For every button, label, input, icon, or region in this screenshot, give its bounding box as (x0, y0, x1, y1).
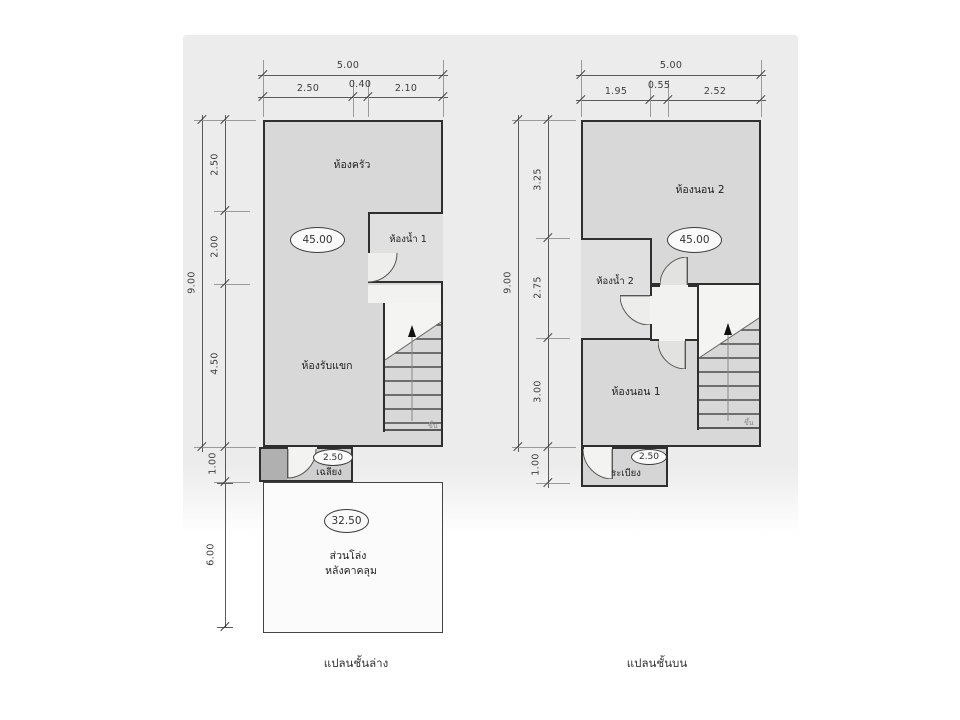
u-room-bathroom2-label: ห้องน้ำ 2 (585, 274, 645, 289)
g-dim-height-total: 9.00 (187, 263, 198, 303)
u-area-badge: 45.00 (667, 227, 722, 253)
g-dim-open-height: 6.00 (206, 535, 217, 575)
u-balcony-badge-value: 2.50 (639, 452, 659, 462)
dimension-line (202, 115, 203, 452)
g-caption: แปลนชั้นล่าง (306, 655, 406, 673)
dimension-line (576, 100, 766, 101)
dimension-line (548, 115, 549, 488)
u-dim-h1: 3.25 (533, 160, 544, 200)
extension-line (581, 60, 582, 117)
g-open-badge: 32.50 (324, 509, 369, 533)
g-open-area-label2: หลังคาคลุม (311, 562, 391, 579)
dimension-line (225, 115, 226, 487)
g-bathroom1-door (368, 253, 398, 283)
u-dim-height-total: 9.00 (503, 263, 514, 303)
u-area-badge-value: 45.00 (679, 234, 709, 246)
g-dim-width-total: 5.00 (328, 60, 368, 71)
dimension-line (518, 115, 519, 452)
u-dim-h2: 2.75 (533, 268, 544, 308)
u-bedroom1-door (658, 341, 686, 369)
u-bedroom2-door (660, 257, 688, 285)
g-room-porch-label: เฉลียง (299, 465, 359, 480)
u-dim-h3: 3.00 (533, 372, 544, 412)
dimension-lines-layer (0, 0, 960, 720)
u-balcony-badge: 2.50 (631, 449, 667, 465)
dimension-line (225, 483, 226, 627)
extension-line (214, 211, 250, 212)
u-dim-h4: 1.00 (531, 445, 542, 485)
g-open-badge-value: 32.50 (331, 515, 361, 527)
dimension-end-cap (217, 483, 233, 484)
u-caption: แปลนชั้นบน (607, 655, 707, 673)
g-dim-h4: 1.00 (208, 444, 219, 484)
extension-line (263, 60, 264, 117)
g-dim-h2: 2.00 (210, 227, 221, 267)
extension-line (536, 238, 570, 239)
g-dim-w2: 0.40 (344, 79, 376, 90)
dimension-line (258, 75, 448, 76)
g-porch-badge-value: 2.50 (323, 453, 343, 463)
g-stair-passage (368, 285, 441, 303)
g-room-living-label: ห้องรับแขก (287, 357, 367, 374)
extension-line (761, 60, 762, 117)
u-dim-w1: 1.95 (596, 86, 636, 97)
g-porch-badge: 2.50 (313, 449, 353, 466)
u-dim-w2: 0.55 (643, 80, 675, 91)
g-dim-h3: 4.50 (210, 344, 221, 384)
u-room-balcony-label: ระเบียง (596, 466, 656, 481)
u-wall-stub (650, 283, 660, 287)
g-porch-slab (261, 449, 287, 480)
u-room-bedroom2-label: ห้องนอน 2 (660, 181, 740, 198)
extension-line (443, 60, 444, 117)
g-dim-h1: 2.50 (210, 145, 221, 185)
u-dim-w3: 2.52 (695, 86, 735, 97)
u-room-bedroom1-label: ห้องนอน 1 (596, 383, 676, 400)
floor-plan-sheet: 5.00 2.50 0.40 2.10 9.00 2.50 2.00 4.50 … (0, 0, 960, 720)
u-hall (652, 287, 697, 339)
g-staircase: ขึ้น (385, 303, 441, 432)
extension-line (214, 284, 250, 285)
g-area-badge-value: 45.00 (302, 234, 332, 246)
u-dim-width-total: 5.00 (651, 60, 691, 71)
dimension-line (576, 75, 766, 76)
extension-line (536, 338, 570, 339)
u-bathroom2-door (620, 295, 650, 325)
g-room-bathroom1-label: ห้องน้ำ 1 (378, 232, 438, 247)
g-area-badge: 45.00 (290, 227, 345, 253)
g-room-kitchen-label: ห้องครัว (312, 156, 392, 173)
g-dim-w3: 2.10 (386, 83, 426, 94)
g-dim-w1: 2.50 (288, 83, 328, 94)
u-staircase: ขึ้น (699, 285, 759, 430)
